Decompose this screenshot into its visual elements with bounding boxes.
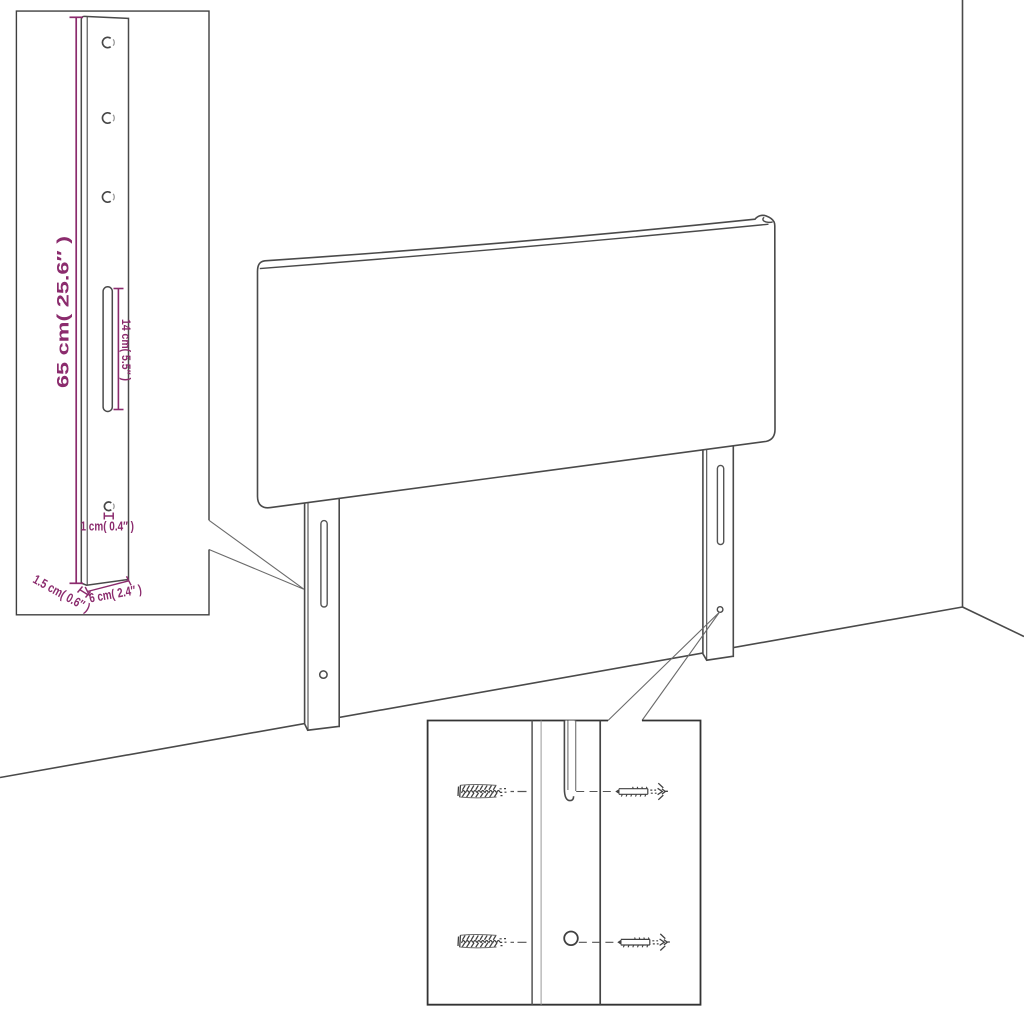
svg-text:6 cm( 2.4″ ): 6 cm( 2.4″ ) [88,581,143,605]
svg-text:1 cm( 0.4″ ): 1 cm( 0.4″ ) [81,519,135,534]
svg-text:65 cm( 25.6″ ): 65 cm( 25.6″ ) [54,236,73,388]
svg-text:14 cm( 5.5″ ): 14 cm( 5.5″ ) [119,319,131,381]
